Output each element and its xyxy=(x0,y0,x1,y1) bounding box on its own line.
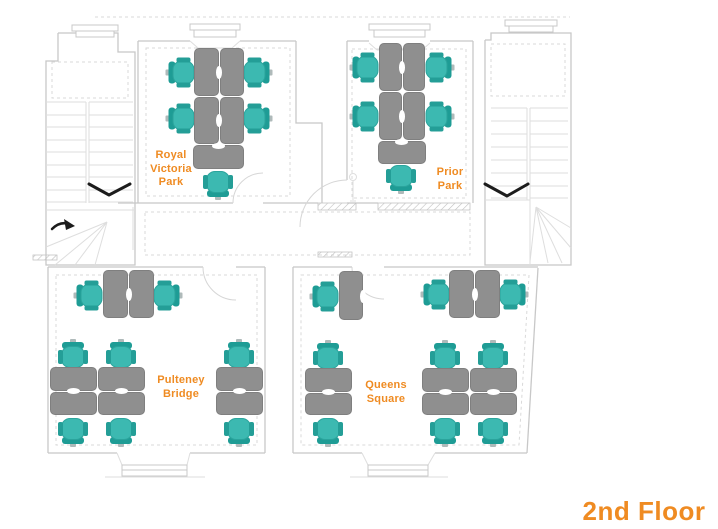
chair-seat xyxy=(244,107,266,131)
chair-arm-l xyxy=(321,307,335,312)
chair-arm-l xyxy=(430,53,444,58)
chair-seat xyxy=(357,56,379,80)
floor-lamp-icon xyxy=(350,174,357,202)
chair-arm-r xyxy=(338,351,343,365)
chair-arm-l xyxy=(131,422,136,436)
cable-grommet xyxy=(399,110,405,123)
chair-arm-l xyxy=(430,102,444,107)
cable-grommet xyxy=(216,114,222,127)
cable-grommet xyxy=(216,66,222,79)
chair-icon xyxy=(224,339,254,370)
chair-arm-r xyxy=(432,280,446,285)
chair-arm-r xyxy=(177,104,191,109)
stairwell-left xyxy=(46,33,135,265)
chair-seat xyxy=(481,418,505,440)
chair-arm-r xyxy=(455,351,460,365)
chair-arm-l xyxy=(338,422,343,436)
room-label-royal-victoria-park: Royal Victoria Park xyxy=(131,149,211,190)
chair-arm-r xyxy=(83,350,88,364)
cable-grommet xyxy=(212,143,225,149)
desk-royal-victoria-park xyxy=(220,97,244,144)
chair-arm-l xyxy=(249,422,254,436)
chair-arm-r xyxy=(131,350,136,364)
chair-arm-l xyxy=(58,350,63,364)
chair-arm-r xyxy=(430,127,444,132)
chair-icon xyxy=(478,416,508,447)
chair-arm-l xyxy=(455,422,460,436)
cable-grommet xyxy=(395,139,408,145)
chair-icon xyxy=(350,53,381,83)
chair-seat xyxy=(227,418,251,440)
chair-seat xyxy=(154,284,176,308)
chair-arm-l xyxy=(432,305,446,310)
cable-grommet xyxy=(487,389,500,395)
window-bays-top xyxy=(72,20,557,50)
desk-prior-park xyxy=(403,92,425,140)
floor-plan: Royal Victoria Park Prior Park Pulteney … xyxy=(0,0,718,529)
desk-pulteney-bridge xyxy=(50,392,97,415)
room-label-pulteney-bridge: Pulteney Bridge xyxy=(141,374,221,401)
chair-seat xyxy=(428,283,450,307)
chair-arm-r xyxy=(321,282,335,287)
desk-prior-park xyxy=(403,43,425,91)
chair-arm-r xyxy=(313,422,318,436)
chair-icon xyxy=(313,416,343,447)
chair-seat xyxy=(317,285,339,309)
chair-icon xyxy=(166,58,197,88)
cable-grommet xyxy=(360,290,366,303)
chair-arm-r xyxy=(430,78,444,83)
chair-seat xyxy=(227,346,251,368)
chair-arm-l xyxy=(361,78,375,83)
chair-arm-l xyxy=(504,280,518,285)
chair-icon xyxy=(421,280,452,310)
chair-icon xyxy=(430,416,460,447)
cable-grommet xyxy=(115,388,128,394)
desk-queens-square xyxy=(305,393,352,415)
chair-arm-l xyxy=(85,306,99,311)
floor-title: 2nd Floor xyxy=(570,496,718,527)
chair-arm-r xyxy=(224,422,229,436)
chair-arm-r xyxy=(177,58,191,63)
chair-arm-r xyxy=(248,83,262,88)
chair-icon xyxy=(242,58,273,88)
desk-queens-square xyxy=(475,270,500,318)
chair-arm-l xyxy=(177,129,191,134)
chair-icon xyxy=(430,340,460,371)
chair-arm-l xyxy=(430,351,435,365)
cable-grommet xyxy=(233,388,246,394)
chair-arm-r xyxy=(430,422,435,436)
stairwell-right xyxy=(485,33,571,265)
desk-queens-square xyxy=(449,270,474,318)
chair-arm-r xyxy=(85,281,99,286)
chair-seat xyxy=(316,347,340,369)
desk-pulteney-bridge xyxy=(216,392,263,415)
chair-icon xyxy=(424,53,455,83)
chair-seat xyxy=(173,61,195,85)
chair-arm-r xyxy=(386,169,391,183)
chair-icon xyxy=(224,416,254,447)
room-label-prior-park: Prior Park xyxy=(410,166,490,193)
chair-seat xyxy=(433,347,457,369)
chair-icon xyxy=(152,281,183,311)
chair-arm-r xyxy=(248,129,262,134)
chair-seat xyxy=(81,284,103,308)
chair-icon xyxy=(478,340,508,371)
chair-arm-l xyxy=(313,351,318,365)
chair-seat xyxy=(426,105,448,129)
desk-queens-square xyxy=(422,393,469,415)
cable-grommet xyxy=(472,288,478,301)
desk-royal-victoria-park xyxy=(220,48,244,96)
chair-arm-r xyxy=(158,306,172,311)
chair-seat xyxy=(433,418,457,440)
chair-arm-l xyxy=(177,83,191,88)
chair-icon xyxy=(310,282,341,312)
chair-arm-r xyxy=(106,422,111,436)
desk-pulteney-bridge xyxy=(98,392,145,415)
chair-arm-l xyxy=(224,350,229,364)
cable-grommet xyxy=(399,61,405,74)
chair-arm-r xyxy=(361,102,375,107)
chair-seat xyxy=(500,283,522,307)
chair-seat xyxy=(173,107,195,131)
chair-seat xyxy=(481,347,505,369)
corridor-floor-edge xyxy=(145,212,470,255)
chair-arm-r xyxy=(361,53,375,58)
chair-arm-r xyxy=(504,305,518,310)
desk-pulteney-bridge xyxy=(129,270,154,318)
chair-arm-r xyxy=(58,422,63,436)
chair-arm-l xyxy=(228,175,233,189)
chair-icon xyxy=(350,102,381,132)
desk-queens-square xyxy=(470,393,517,415)
chair-arm-l xyxy=(478,351,483,365)
chair-icon xyxy=(166,104,197,134)
chair-seat xyxy=(109,346,133,368)
chair-icon xyxy=(242,104,273,134)
chair-arm-l xyxy=(248,58,262,63)
chair-icon xyxy=(58,416,88,447)
chair-arm-l xyxy=(106,350,111,364)
room-label-queens-square: Queens Square xyxy=(346,379,426,406)
cable-grommet xyxy=(126,288,132,301)
chair-arm-l xyxy=(361,127,375,132)
chair-icon xyxy=(498,280,529,310)
chair-icon xyxy=(58,339,88,370)
chair-arm-r xyxy=(503,351,508,365)
cable-grommet xyxy=(67,388,80,394)
chair-seat xyxy=(357,105,379,129)
chair-arm-r xyxy=(478,422,483,436)
chair-arm-l xyxy=(503,422,508,436)
curved-arrow-icon xyxy=(52,219,75,230)
chair-seat xyxy=(426,56,448,80)
chair-arm-l xyxy=(248,104,262,109)
chair-icon xyxy=(106,416,136,447)
chair-arm-l xyxy=(158,281,172,286)
cable-grommet xyxy=(322,389,335,395)
chair-seat xyxy=(316,418,340,440)
window-bays-bottom xyxy=(105,453,448,477)
chair-icon xyxy=(106,339,136,370)
chair-icon xyxy=(74,281,105,311)
chair-seat xyxy=(244,61,266,85)
chair-icon xyxy=(424,102,455,132)
chair-seat xyxy=(61,346,85,368)
chair-arm-l xyxy=(83,422,88,436)
desk-pulteney-bridge xyxy=(103,270,128,318)
chair-seat xyxy=(61,418,85,440)
chair-seat xyxy=(109,418,133,440)
cable-grommet xyxy=(439,389,452,395)
chair-icon xyxy=(313,340,343,371)
chair-arm-r xyxy=(249,350,254,364)
